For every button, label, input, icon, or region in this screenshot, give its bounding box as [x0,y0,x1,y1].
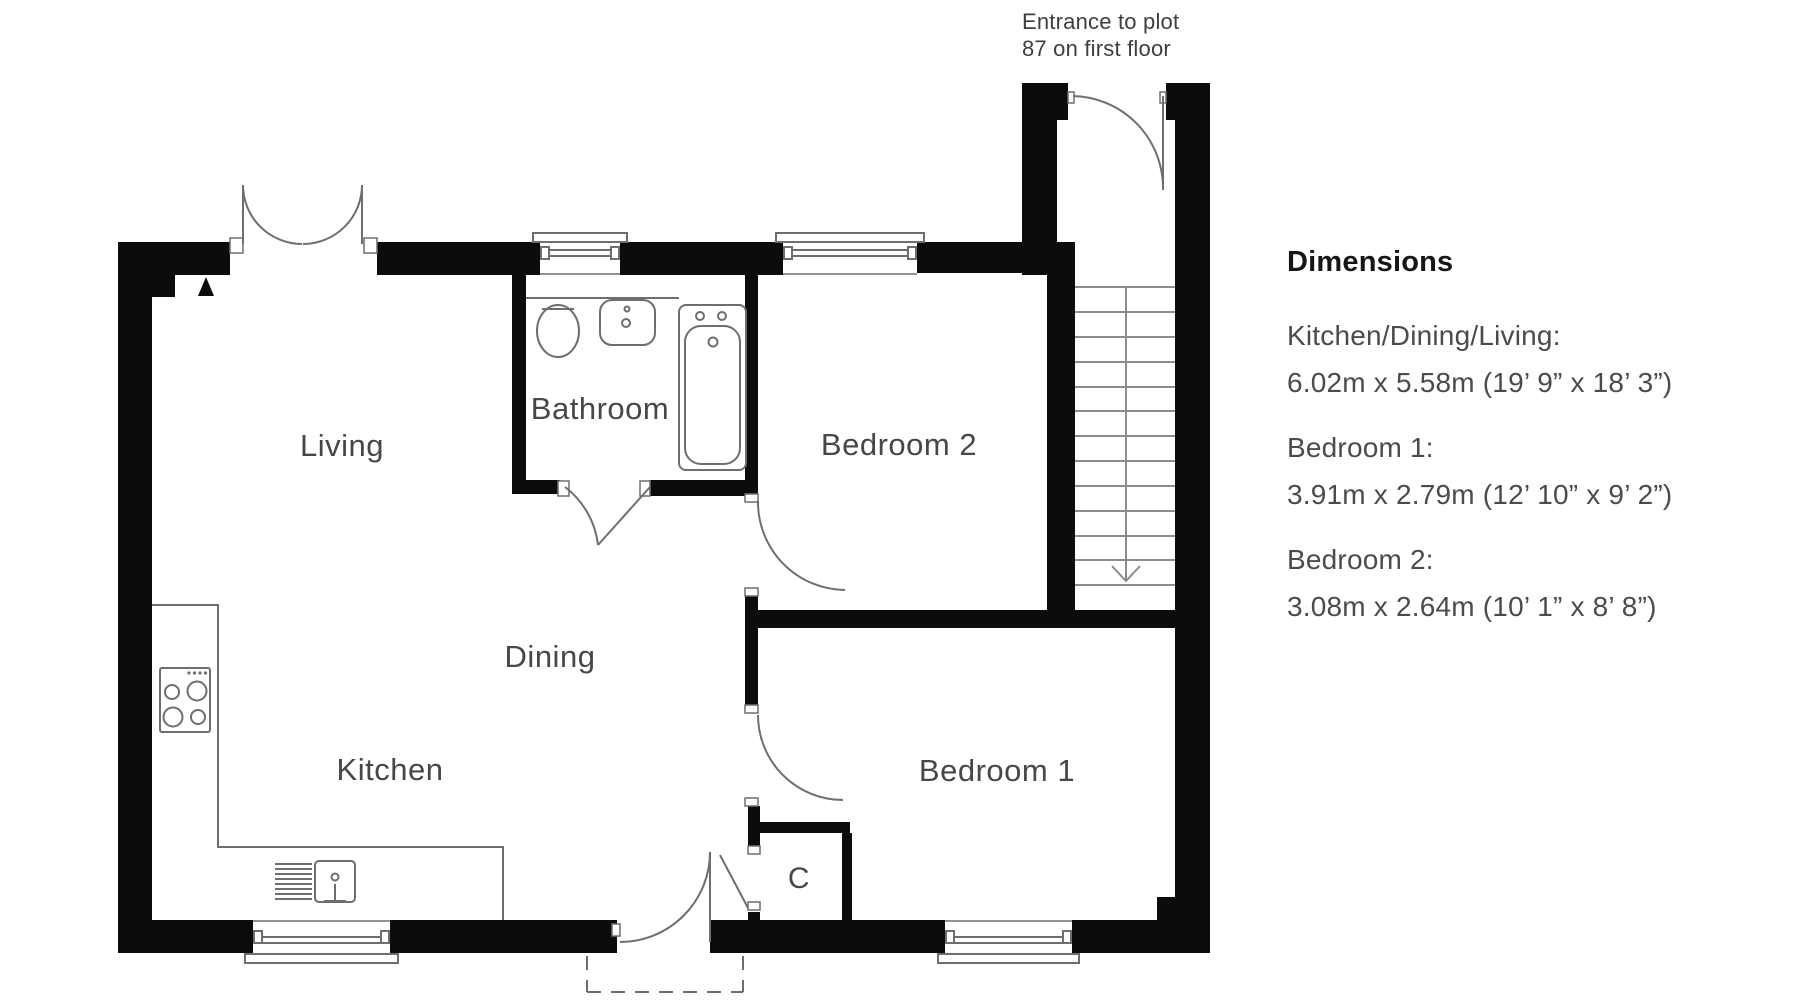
bedroom1-door [745,705,843,806]
entrance-note-line1: Entrance to plot [1022,8,1179,35]
cupboard-door [720,846,760,910]
dimension-entry: Bedroom 1: 3.91m x 2.79m (12’ 10” x 9’ 2… [1287,424,1672,518]
entrance-note: Entrance to plot 87 on first floor [1022,8,1179,62]
bedroom2-door [745,494,845,596]
dimension-entry: Bedroom 2: 3.08m x 2.64m (10’ 1” x 8’ 8”… [1287,536,1672,630]
entrance-door [1068,92,1166,190]
floorplan-page: Living Bathroom Bedroom 2 Dining Kitchen… [0,0,1800,1008]
staircase [1075,287,1175,585]
floor-plan: Living Bathroom Bedroom 2 Dining Kitchen… [0,0,1260,1008]
bathroom-door [558,481,650,545]
sink-unit-icon [275,861,355,902]
room-label-bedroom2: Bedroom 2 [821,427,977,462]
room-label-bedroom1: Bedroom 1 [919,753,1075,788]
patio-double-door [230,185,377,253]
room-label-kitchen: Kitchen [337,752,444,787]
room-label-living: Living [300,428,384,463]
room-label-cupboard: C [788,862,810,895]
toilet-icon [537,305,579,357]
front-door [612,852,710,942]
bathroom-window [533,233,627,274]
bathroom-fixtures [526,298,746,470]
dimensions-heading: Dimensions [1287,246,1672,279]
room-label-bathroom: Bathroom [531,391,669,426]
dimension-label: Bedroom 2: [1287,536,1672,583]
triangle-marker [198,277,214,296]
porch-dashed-outline [587,956,743,992]
walls [118,83,1210,953]
dimensions-panel: Dimensions Kitchen/Dining/Living: 6.02m … [1287,246,1672,648]
hob-icon [160,668,210,732]
bathtub-icon [679,305,746,470]
kitchen-counter [152,605,503,920]
room-label-dining: Dining [505,639,596,674]
dimension-value: 6.02m x 5.58m (19’ 9” x 18’ 3”) [1287,359,1672,406]
dimension-entry: Kitchen/Dining/Living: 6.02m x 5.58m (19… [1287,312,1672,406]
dimension-value: 3.91m x 2.79m (12’ 10” x 9’ 2”) [1287,471,1672,518]
dimension-label: Kitchen/Dining/Living: [1287,312,1672,359]
dimension-label: Bedroom 1: [1287,424,1672,471]
room-labels: Living Bathroom Bedroom 2 Dining Kitchen… [300,391,1075,895]
bedroom2-window [776,233,924,274]
basin-icon [600,300,655,345]
entrance-note-line2: 87 on first floor [1022,35,1179,62]
bedroom1-window [938,921,1079,963]
kitchen-window [245,921,398,963]
dimension-value: 3.08m x 2.64m (10’ 1” x 8’ 8”) [1287,583,1672,630]
